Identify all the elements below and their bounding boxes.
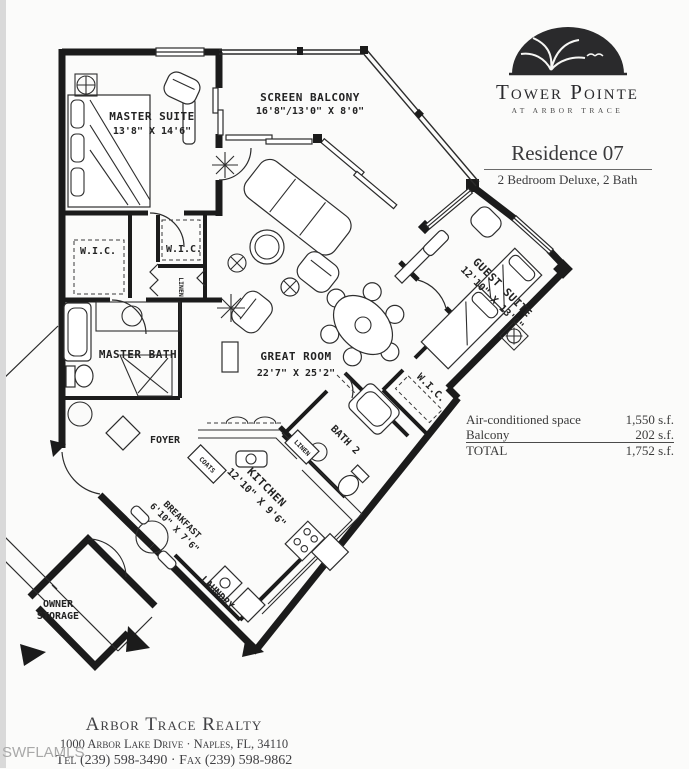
floorplan-page: SCREEN BALCONY 16'8"/13'0" X 8'0" MASTER…: [0, 0, 689, 768]
plant: [217, 294, 245, 322]
tv-cabinet: [222, 342, 238, 372]
dims-screen-balcony: 16'8"/13'0" X 8'0": [256, 106, 364, 117]
palm-sunset-logo-icon: [503, 26, 633, 78]
label-great-room: GREAT ROOM: [260, 350, 331, 363]
table-row: Balcony 202 s.f.: [466, 427, 674, 443]
label-owner-storage-1: OWNER: [43, 599, 74, 610]
residence-type: 2 Bedroom Deluxe, 2 Bath: [455, 172, 680, 188]
realty-name: Arbor Trace Realty: [6, 714, 342, 736]
master-toilet: [66, 366, 75, 387]
dims-master-suite: 13'8" X 14'6": [113, 126, 191, 137]
guest-chair: [422, 229, 450, 257]
title-block: Tower Pointe AT ARBOR TRACE Residence 07…: [455, 26, 680, 188]
table-row: Air-conditioned space 1,550 s.f.: [466, 412, 674, 427]
label-wic-guest: W.I.C.: [414, 372, 447, 405]
residence-title: Residence 07: [455, 141, 680, 166]
ceiling-fan-greatroom: [228, 254, 246, 272]
ceiling-fan-master: [75, 74, 97, 96]
dims-great-room: 22'7" X 25'2": [257, 368, 335, 379]
label-master-bath: MASTER BATH: [99, 348, 177, 361]
area-summary-table: Air-conditioned space 1,550 s.f. Balcony…: [466, 412, 674, 458]
area-row-label: Balcony: [466, 427, 509, 442]
area-row-value: 1,752 s.f.: [626, 443, 674, 458]
logo-title: Tower Pointe: [455, 80, 680, 105]
master-chair: [161, 69, 203, 107]
mls-watermark: SWFLAMLS: [2, 744, 85, 761]
scan-edge-artifact: [0, 0, 6, 768]
breakfast-chair: [156, 549, 177, 570]
area-row-label: Air-conditioned space: [466, 412, 581, 427]
label-master-suite: MASTER SUITE: [109, 110, 194, 123]
label-screen-balcony: SCREEN BALCONY: [260, 91, 360, 104]
master-vanity: [96, 302, 180, 331]
label-bath-2: BATH 2: [328, 424, 361, 457]
label-owner-storage-2: STORAGE: [37, 611, 79, 622]
area-row-value: 202 s.f.: [635, 427, 674, 442]
plant: [212, 152, 238, 178]
title-divider: [484, 169, 652, 170]
kitchen-sink: [236, 451, 267, 467]
side-table: [281, 278, 299, 296]
area-row-value: 1,550 s.f.: [626, 412, 674, 427]
tower-pointe-logo: [455, 26, 680, 78]
bath2-shower: [346, 381, 401, 436]
label-wic-2: W.I.C.: [166, 244, 202, 255]
label-foyer: FOYER: [150, 435, 181, 446]
foyer-table: [68, 402, 92, 426]
label-linen-hall: LINEN: [177, 277, 185, 297]
label-wic-1: W.I.C.: [80, 246, 116, 257]
table-row: TOTAL 1,752 s.f.: [466, 443, 674, 458]
area-row-label: TOTAL: [466, 443, 507, 458]
logo-subtitle: AT ARBOR TRACE: [455, 106, 680, 115]
